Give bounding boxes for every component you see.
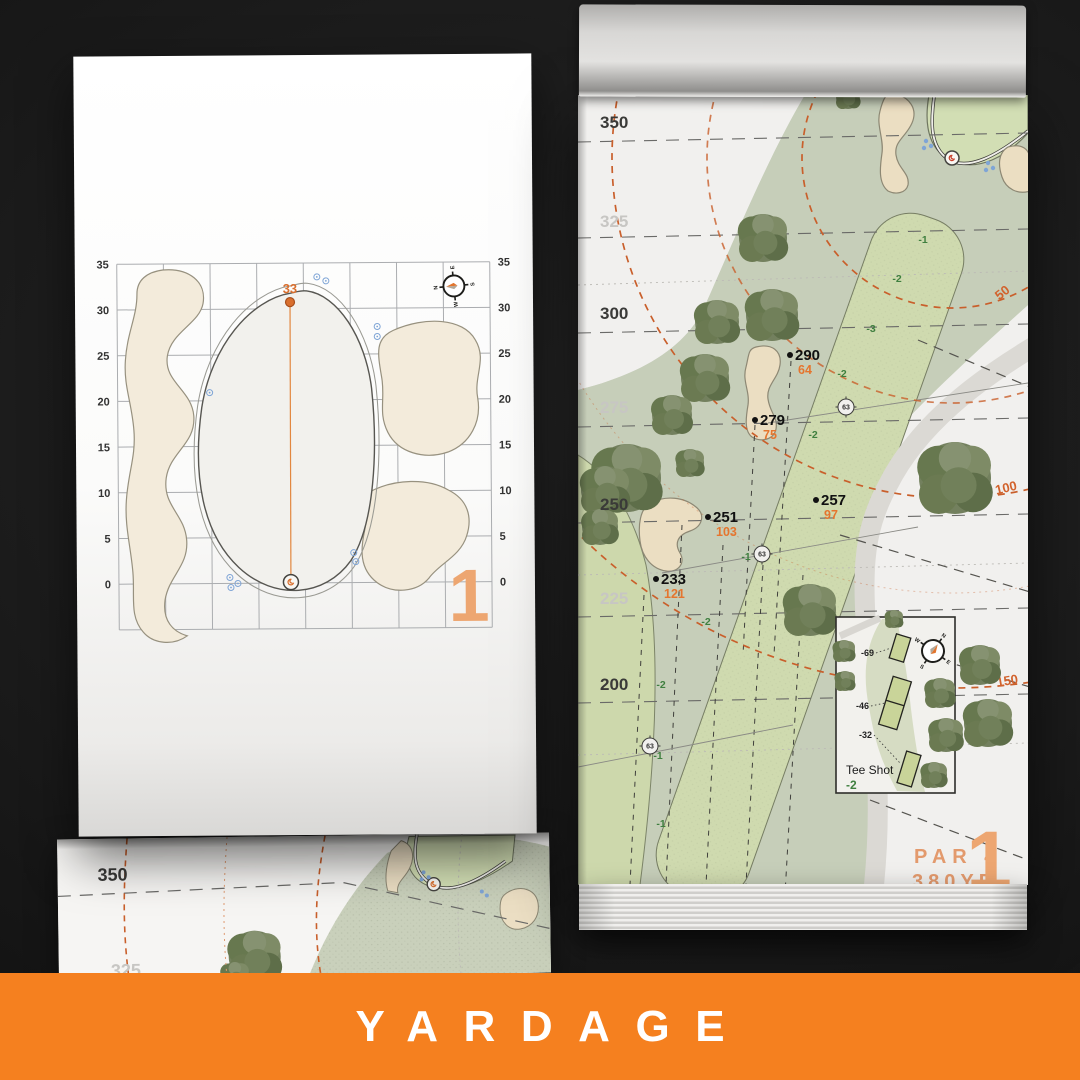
green-detail-chart: 33 3535303025252020151510105500 NESW 1: [73, 53, 536, 836]
sprinkler-dot: [228, 584, 234, 590]
slope-number: -3: [866, 323, 875, 335]
slope-number: -2: [808, 429, 817, 441]
tree: [928, 718, 964, 752]
carry-distance: 290: [795, 347, 820, 364]
sprinkler-dot: [314, 274, 320, 280]
sprinkler-dot: [374, 323, 380, 329]
to-green-distance: 97: [824, 508, 838, 522]
sprinkler-dot: [323, 278, 329, 284]
peek-map: 350325: [57, 833, 551, 980]
tree: [924, 678, 956, 708]
to-green-distance: 64: [798, 363, 812, 377]
svg-text:63: 63: [842, 405, 850, 412]
slope-number: -1: [741, 551, 750, 563]
tree: [917, 442, 993, 514]
yardage-banner: YARDAGE: [0, 973, 1080, 1080]
slope-number: -2: [701, 616, 710, 628]
edge-distance-label: 250: [600, 495, 628, 514]
tree: [959, 645, 1001, 685]
to-green-distance: 75: [763, 428, 777, 442]
tree: [885, 610, 904, 628]
pin-marker: [283, 575, 298, 590]
axis-tick-right: 15: [499, 439, 511, 451]
compass-point: E: [450, 265, 456, 270]
axis-tick-right: 35: [498, 257, 510, 269]
axis-tick-left: 5: [104, 534, 110, 546]
tree: [963, 699, 1013, 747]
edge-distance-label: 275: [600, 398, 628, 417]
page-stack-edge: [579, 884, 1027, 930]
tee-distance-label: -69: [861, 648, 874, 658]
page-number: 1: [448, 554, 490, 637]
sprinkler-dot: [227, 575, 233, 581]
banner-title: YARDAGE: [330, 1002, 750, 1052]
flipped-page-back: [579, 4, 1026, 97]
svg-text:63: 63: [758, 552, 766, 559]
edge-distance-label: 325: [600, 212, 628, 231]
axis-tick-left: 35: [96, 259, 108, 271]
tree: [783, 584, 838, 636]
carry-distance: 257: [821, 492, 846, 509]
spine-shadow: [578, 95, 587, 885]
tree: [675, 449, 704, 477]
carry-distance: 279: [760, 412, 785, 429]
compass-rose: NESW: [432, 263, 479, 309]
front-edge-dot: [285, 298, 294, 307]
slope-number: -2: [837, 368, 846, 380]
compass-point: W: [453, 301, 460, 308]
edge-distance-label: 200: [600, 675, 628, 694]
tree: [920, 762, 947, 788]
tree: [651, 395, 693, 435]
front-distance-label: 33: [283, 281, 298, 296]
axis-tick-right: 10: [499, 485, 511, 497]
slope-number: -1: [656, 818, 665, 830]
axis-tick-right: 30: [498, 302, 510, 314]
sprinkler-dot: [374, 333, 380, 339]
yardage-book-mockup: 33 3535303025252020151510105500 NESW 1: [0, 0, 1080, 1080]
to-green-distance: 103: [716, 525, 737, 539]
tee-shot-inset: -69-46-32 NESW Tee Shot -2: [832, 610, 963, 793]
axis-tick-right: 25: [498, 348, 510, 360]
slope-number: -2: [892, 273, 901, 285]
compass-point: S: [470, 282, 476, 287]
peek-pin-marker: [427, 878, 440, 891]
green-chart-page: 33 3535303025252020151510105500 NESW 1: [73, 53, 536, 836]
next-page-peek: 350325: [57, 833, 551, 980]
edge-distance-label: 225: [600, 589, 628, 608]
tree: [694, 300, 740, 344]
axis-tick-right: 20: [499, 394, 511, 406]
pin-marker: [945, 151, 959, 165]
axis-tick-left: 0: [105, 579, 111, 591]
tree: [680, 354, 730, 402]
axis-tick-left: 25: [97, 351, 109, 363]
axis-tick-left: 20: [97, 396, 109, 408]
axis-tick-left: 15: [98, 442, 110, 454]
hole-map-page: 50100150 636363 -1-2-3-2-2-1-2-2-1-1 290…: [578, 95, 1028, 885]
tree: [745, 289, 800, 341]
green-outline: [193, 283, 380, 599]
page-number: 1: [966, 815, 1012, 885]
tee-distance-label: -32: [859, 730, 872, 740]
tree: [832, 640, 855, 662]
tree: [835, 671, 856, 691]
tee-shot-title: Tee Shot: [846, 763, 894, 777]
edge-distance-label: 300: [600, 304, 628, 323]
carry-distance: 233: [661, 571, 686, 588]
edge-distance-label: 350: [600, 113, 628, 132]
axis-tick-left: 10: [98, 488, 110, 500]
tree: [738, 214, 788, 262]
axis-tick-right: 0: [500, 576, 506, 588]
tee-shot-slope-value: -2: [846, 778, 857, 792]
edge-distance-label: 350: [97, 864, 127, 884]
compass-point: N: [433, 285, 439, 290]
slope-number: -1: [653, 750, 662, 762]
compass-rose: NESW: [432, 263, 479, 309]
to-green-distance: 121: [664, 587, 685, 601]
carry-distance: 251: [713, 509, 738, 526]
tee-distance-label: -46: [856, 701, 869, 711]
slope-number: -1: [918, 234, 927, 246]
slope-number: -2: [656, 679, 665, 691]
axis-tick-left: 30: [97, 305, 109, 317]
axis-tick-right: 5: [500, 531, 506, 543]
